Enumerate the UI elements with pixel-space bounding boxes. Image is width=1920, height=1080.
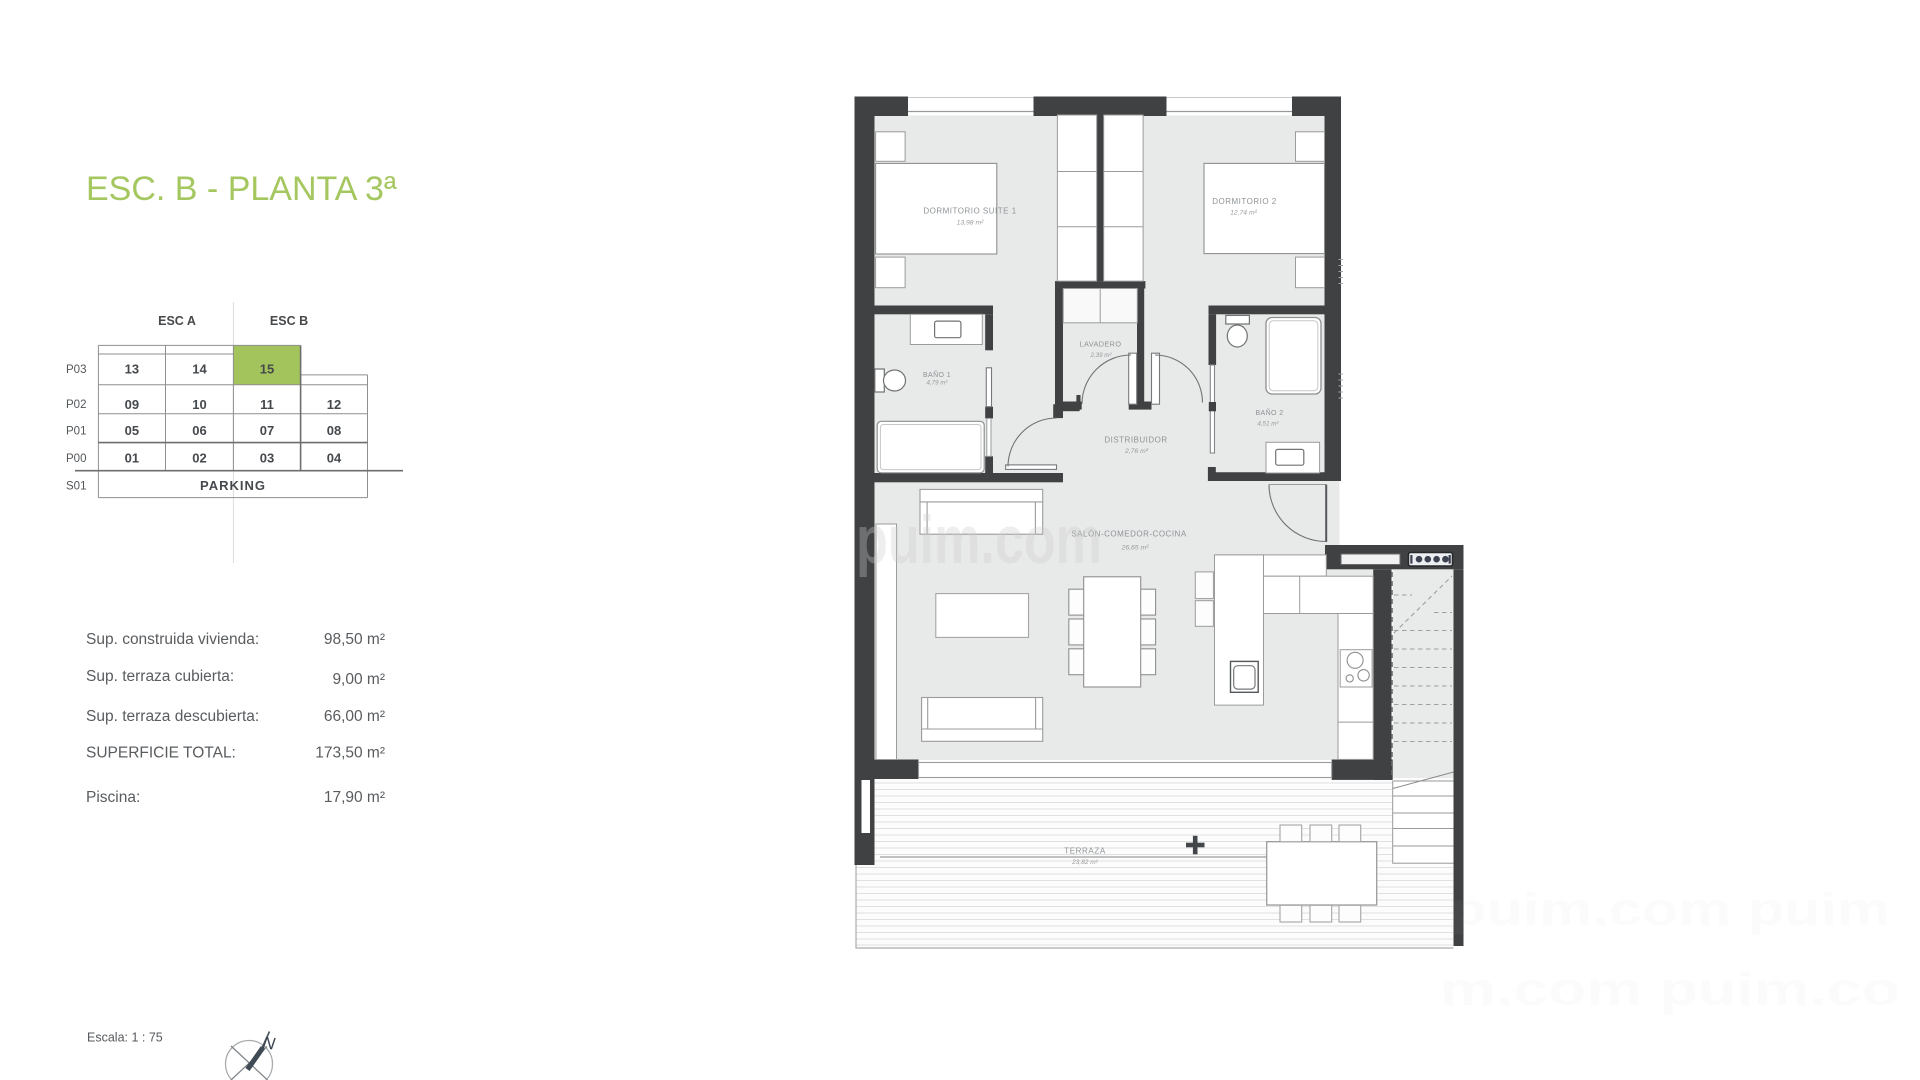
- svg-text:Sup. construida vivienda:: Sup. construida vivienda:: [86, 631, 259, 648]
- svg-text:01: 01: [125, 451, 139, 466]
- svg-text:TERRAZA: TERRAZA: [1064, 847, 1106, 856]
- svg-text:02: 02: [192, 451, 206, 466]
- svg-text:173,50 m²: 173,50 m²: [315, 745, 385, 762]
- svg-text:Sup. terraza descubierta:: Sup. terraza descubierta:: [86, 708, 259, 725]
- svg-text:10: 10: [192, 397, 206, 412]
- svg-text:12: 12: [327, 397, 341, 412]
- svg-text:08: 08: [327, 423, 341, 438]
- svg-text:SUPERFICIE TOTAL:: SUPERFICIE TOTAL:: [86, 745, 236, 762]
- svg-text:4,79 m²: 4,79 m²: [927, 380, 949, 387]
- svg-text:m.com puim.co: m.com puim.co: [1440, 963, 1900, 1015]
- svg-text:P01: P01: [66, 426, 86, 438]
- svg-text:09: 09: [125, 397, 139, 412]
- svg-text:07: 07: [260, 423, 274, 438]
- svg-text:PARKING: PARKING: [200, 478, 266, 493]
- svg-text:66,00 m²: 66,00 m²: [324, 708, 385, 725]
- svg-text:98,50 m²: 98,50 m²: [324, 631, 385, 648]
- svg-text:05: 05: [125, 423, 139, 438]
- svg-text:11: 11: [260, 397, 274, 412]
- svg-text:S01: S01: [66, 481, 86, 493]
- svg-text:P02: P02: [66, 399, 86, 411]
- svg-text:13,98 m²: 13,98 m²: [957, 220, 985, 227]
- svg-text:14: 14: [192, 362, 207, 377]
- svg-text:BAÑO 2: BAÑO 2: [1255, 408, 1283, 417]
- svg-text:DORMITORIO SUITE 1: DORMITORIO SUITE 1: [923, 207, 1016, 216]
- svg-text:P00: P00: [66, 453, 86, 465]
- svg-text:03: 03: [260, 451, 274, 466]
- svg-text:17,90 m²: 17,90 m²: [324, 789, 385, 806]
- svg-text:LAVADERO: LAVADERO: [1080, 340, 1122, 349]
- svg-text:Piscina:: Piscina:: [86, 789, 140, 806]
- svg-text:9,00 m²: 9,00 m²: [332, 671, 385, 688]
- svg-text:DISTRIBUIDOR: DISTRIBUIDOR: [1104, 436, 1167, 445]
- svg-text:23,82 m²: 23,82 m²: [1071, 859, 1098, 866]
- svg-text:Escala: 1 : 75: Escala: 1 : 75: [87, 1031, 163, 1045]
- svg-text:Sup. terraza cubierta:: Sup. terraza cubierta:: [86, 668, 234, 685]
- svg-text:2,76 m²: 2,76 m²: [1124, 448, 1149, 455]
- svg-text:04: 04: [327, 451, 342, 466]
- svg-text:2,39 m²: 2,39 m²: [1090, 352, 1113, 359]
- svg-text:DORMITORIO 2: DORMITORIO 2: [1212, 197, 1277, 206]
- svg-text:15: 15: [260, 362, 274, 377]
- svg-text:puim.com puim: puim.com puim: [1450, 883, 1890, 935]
- svg-text:ESC A: ESC A: [158, 314, 196, 328]
- svg-text:12,74 m²: 12,74 m²: [1230, 210, 1258, 217]
- svg-text:ESC. B - PLANTA 3ª: ESC. B - PLANTA 3ª: [86, 170, 397, 208]
- svg-text:06: 06: [192, 423, 206, 438]
- svg-text:P03: P03: [66, 364, 86, 376]
- svg-text:26,65 m²: 26,65 m²: [1121, 545, 1150, 552]
- svg-text:13: 13: [125, 362, 139, 377]
- svg-text:ESC B: ESC B: [270, 314, 308, 328]
- svg-text:4,51 m²: 4,51 m²: [1258, 421, 1280, 428]
- svg-text:puim.com: puim.com: [856, 502, 1102, 578]
- svg-text:BAÑO 1: BAÑO 1: [923, 370, 951, 379]
